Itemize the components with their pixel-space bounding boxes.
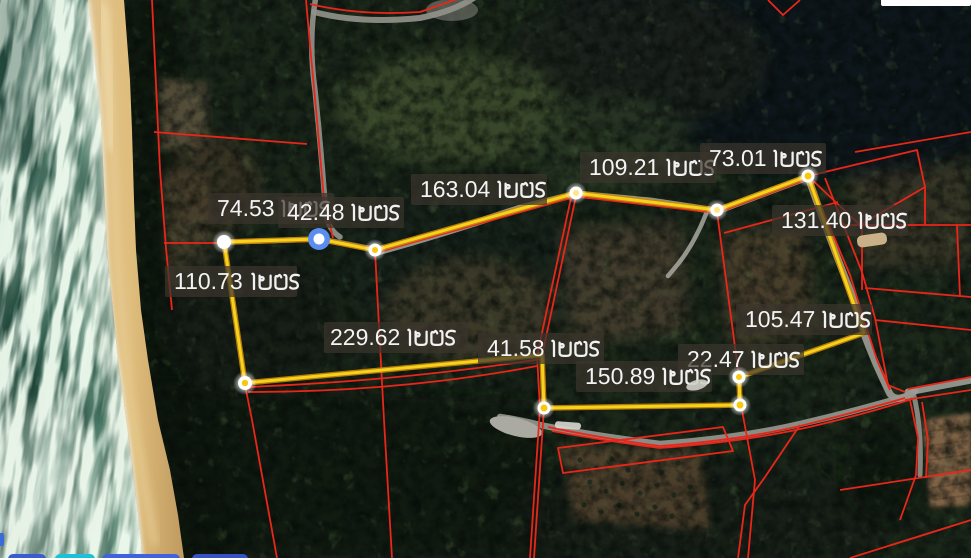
svg-text:150.89: 150.89: [585, 363, 655, 389]
svg-text:229.62: 229.62: [330, 324, 400, 350]
svg-text:110.73: 110.73: [174, 268, 243, 294]
svg-text:131.40: 131.40: [781, 207, 851, 233]
svg-text:41.58: 41.58: [487, 335, 545, 361]
svg-text:42.48: 42.48: [287, 199, 345, 225]
svg-text:74.53: 74.53: [217, 195, 275, 221]
svg-text:105.47: 105.47: [745, 306, 815, 332]
svg-text:163.04: 163.04: [420, 176, 491, 202]
svg-text:73.01: 73.01: [709, 145, 767, 171]
svg-text:109.21: 109.21: [589, 154, 659, 180]
